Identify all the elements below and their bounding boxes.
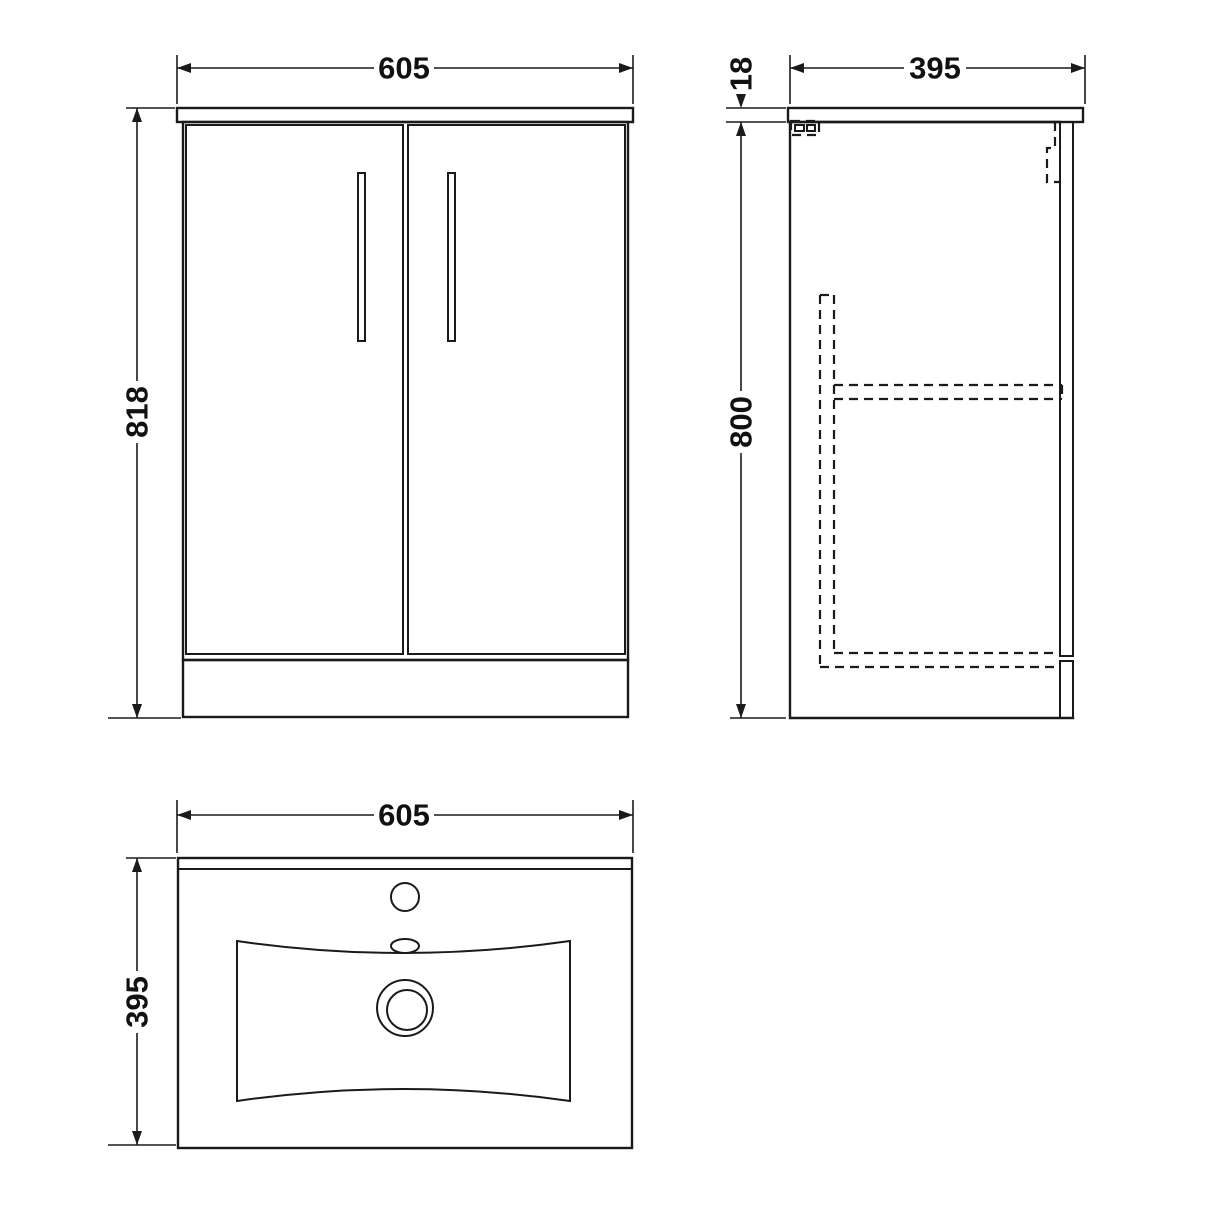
overflow-hole-icon: [391, 939, 419, 953]
arrowhead-left-icon: [790, 63, 804, 73]
arrowhead-up-icon: [132, 858, 142, 872]
hinge-screw-icon: [807, 125, 815, 131]
plan-view: 605 395: [108, 798, 633, 1149]
worktop-thickness-label: 18: [724, 57, 759, 91]
arrowhead-right-icon: [619, 810, 633, 820]
cabinet-side-outline: [790, 122, 1073, 718]
tap-hole-icon: [391, 883, 419, 911]
door-side-edge: [1060, 122, 1073, 718]
plan-depth-dimension: 395: [108, 858, 176, 1145]
drain-inner-ring: [387, 990, 427, 1030]
arrowhead-down-icon: [132, 704, 142, 718]
arrowhead-down-icon: [132, 1131, 142, 1145]
arrowhead-right-icon: [619, 63, 633, 73]
back-panel-hidden-lines: [820, 295, 834, 667]
arrowhead-down-icon: [736, 94, 746, 108]
shelf-hidden-lines: [834, 385, 1062, 399]
plan-width-label: 605: [378, 798, 430, 833]
hinge-hidden-detail-right: [1047, 122, 1060, 182]
front-view: 605 818: [108, 51, 633, 719]
door-left: [186, 125, 403, 654]
bottom-panel-hidden-lines: [820, 653, 1060, 667]
side-height-dimension: 800: [724, 122, 787, 718]
front-width-dimension: 605: [177, 51, 633, 105]
technical-drawing-vanity-unit: 605 818: [0, 0, 1214, 1214]
arrowhead-up-icon: [736, 122, 746, 136]
front-width-label: 605: [378, 51, 430, 86]
worktop-side: [788, 108, 1083, 122]
side-depth-label: 395: [909, 51, 961, 86]
side-depth-dimension: 395: [790, 51, 1085, 105]
door-right: [408, 125, 625, 654]
plinth-front: [183, 660, 628, 717]
drawing-canvas: 605 818: [0, 0, 1214, 1214]
arrowhead-up-icon: [132, 108, 142, 122]
front-height-label: 818: [120, 386, 155, 438]
side-height-label: 800: [724, 396, 759, 448]
hinge-screw-icon: [795, 125, 804, 131]
worktop-thickness-dimension: 18: [724, 57, 787, 122]
drain-icon: [377, 980, 433, 1036]
worktop-front: [177, 108, 633, 122]
handle-left: [358, 173, 365, 341]
handle-right: [448, 173, 455, 341]
arrowhead-left-icon: [177, 63, 191, 73]
arrowhead-down-icon: [736, 704, 746, 718]
side-view: 395 18 800: [724, 51, 1086, 719]
plan-width-dimension: 605: [177, 798, 633, 854]
arrowhead-right-icon: [1071, 63, 1085, 73]
cabinet-body-front: [183, 122, 628, 660]
plan-depth-label: 395: [120, 976, 155, 1028]
front-height-dimension: 818: [108, 108, 181, 718]
arrowhead-left-icon: [177, 810, 191, 820]
